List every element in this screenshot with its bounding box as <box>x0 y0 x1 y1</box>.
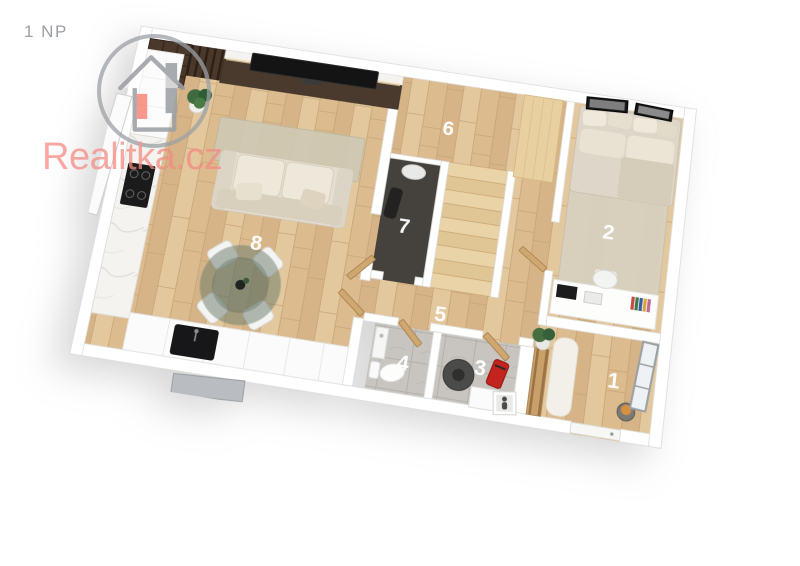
poster <box>493 392 516 415</box>
screenshot-root: 1 NP <box>0 0 800 566</box>
slat-panel <box>186 45 226 81</box>
floor-label: 1 NP <box>24 22 68 42</box>
floor-plan-3d: 1 2 3 4 5 6 7 8 <box>53 12 709 472</box>
floor-plan-svg: 1 2 3 4 5 6 7 8 <box>53 12 709 472</box>
laptop <box>584 291 602 305</box>
